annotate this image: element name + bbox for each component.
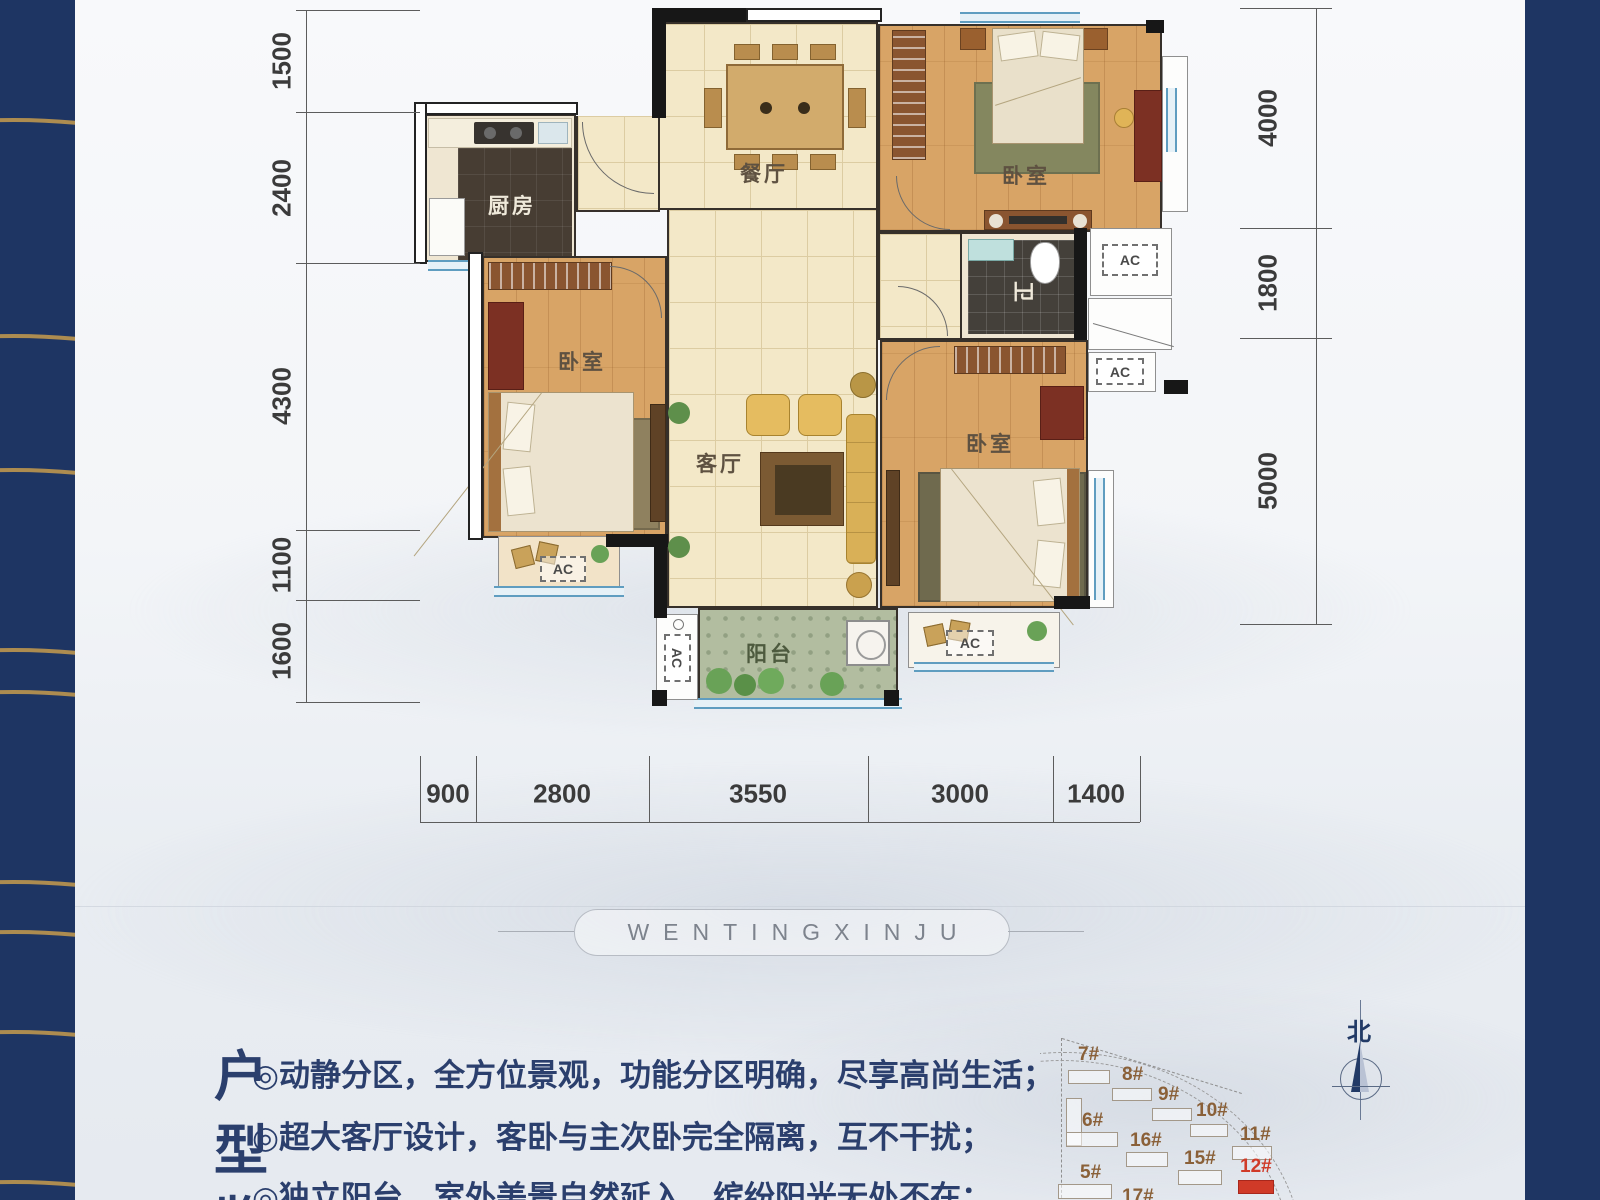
building-footprint: [1112, 1088, 1152, 1101]
dining-chair: [810, 154, 836, 170]
compass-needle-light: [1360, 1042, 1369, 1092]
armchair: [798, 394, 842, 436]
building-footprint: [1126, 1152, 1168, 1167]
armchair: [746, 394, 790, 436]
dim-label: 1100: [267, 537, 298, 593]
coffee-table: [760, 452, 844, 526]
fridge: [429, 198, 465, 256]
dim-label: 3000: [931, 779, 989, 810]
dining-chair: [848, 88, 866, 128]
utility-platform: [1088, 298, 1172, 350]
bed: [488, 392, 634, 532]
dining-label: 餐厅: [740, 158, 788, 188]
balcony-label: 阳台: [746, 638, 794, 668]
cabinet: [488, 302, 524, 390]
ac-unit: AC: [664, 634, 691, 682]
desk-chair: [1114, 108, 1134, 128]
dining-chair: [704, 88, 722, 128]
building-label: 15#: [1184, 1148, 1216, 1170]
nightstand: [960, 28, 986, 50]
building-label: 16#: [1130, 1130, 1162, 1152]
dim-label: 2400: [267, 159, 298, 217]
wall-chunk: [1074, 228, 1087, 340]
outer-wall: [414, 102, 427, 264]
dim-tick: [868, 756, 869, 822]
dim-tick: [420, 756, 421, 822]
kitchen-sink: [538, 122, 568, 144]
dim-label: 5000: [1253, 452, 1284, 510]
compass-needle: [1351, 1042, 1360, 1092]
dim-label: 4000: [1253, 89, 1284, 147]
dim-tick: [649, 756, 650, 822]
nightstand: [1082, 28, 1108, 50]
dim-label: 2800: [533, 779, 591, 810]
bedroom-left-label: 卧室: [558, 346, 606, 376]
building-label: 11#: [1240, 1124, 1271, 1146]
dim-tick: [1240, 624, 1332, 625]
dim-label: 1600: [267, 622, 298, 680]
side-table: [850, 372, 876, 398]
dim-tick: [1240, 338, 1332, 339]
bathroom-label: 卫: [1009, 281, 1039, 305]
dim-tick: [1053, 756, 1054, 822]
dim-tick: [1240, 228, 1332, 229]
plant: [668, 536, 690, 558]
kitchen-label: 厨房: [488, 190, 536, 220]
building-footprint: [1066, 1132, 1118, 1147]
plant: [706, 668, 732, 694]
desk: [1134, 90, 1162, 182]
gold-arc: [0, 1030, 75, 1200]
pouf: [846, 572, 872, 598]
building-footprint-highlight: [1238, 1180, 1274, 1194]
ac-unit: AC: [946, 630, 994, 656]
wall-chunk: [652, 8, 748, 22]
dim-tick: [296, 112, 420, 113]
building-label: 9#: [1158, 1084, 1179, 1106]
left-decor-band: [0, 0, 75, 1200]
bathroom-sink: [968, 239, 1014, 261]
bed: [940, 468, 1080, 602]
ac-unit: AC: [1102, 244, 1158, 276]
mist-divider-line: [75, 906, 1525, 907]
outer-wall: [468, 252, 483, 540]
building-label: 7#: [1078, 1044, 1099, 1066]
tv-console: [886, 470, 900, 586]
dim-label: 1800: [1253, 254, 1284, 312]
window: [428, 260, 472, 271]
window: [694, 698, 902, 709]
dining-chair: [772, 44, 798, 60]
wall-chunk: [652, 690, 667, 706]
banner-text: WENTINGXINJU: [613, 919, 970, 946]
dim-line-right: [1316, 8, 1317, 624]
window: [960, 12, 1080, 23]
wall-chunk: [652, 8, 666, 118]
tv-console: [650, 404, 666, 522]
dim-tick: [296, 10, 420, 11]
building-label: 6#: [1082, 1110, 1103, 1132]
poster-page: 厨房 卧室 卫 AC AC: [0, 0, 1600, 1200]
building-footprint: [1152, 1108, 1192, 1121]
building-label: 17#: [1122, 1186, 1154, 1200]
window: [1094, 478, 1105, 600]
compass-crossline: [1332, 1086, 1390, 1087]
gold-arc: [0, 1180, 75, 1200]
building-label: 5#: [1080, 1162, 1101, 1184]
window: [494, 586, 624, 597]
dim-line-left: [306, 10, 307, 702]
washing-machine: [846, 620, 890, 666]
wardrobe: [954, 346, 1066, 374]
ac-unit: AC: [1096, 358, 1144, 385]
feature-bullet: ◎动静分区，全方位景观，功能分区明确，尽享高尚生活；: [252, 1050, 1054, 1095]
bedroom-top-label: 卧室: [1002, 160, 1050, 190]
dining-chair: [734, 44, 760, 60]
dim-label: 1500: [267, 32, 298, 90]
banner-pill: WENTINGXINJU: [574, 909, 1010, 956]
feature-bullet: ◎独立阳台，室外美景自然延入，缤纷阳光无处不在；: [252, 1172, 992, 1200]
bed: [992, 28, 1084, 144]
wardrobe: [892, 30, 926, 160]
dim-label: 1400: [1067, 779, 1125, 810]
sitemap: 7# 8# 9# 10# 11# 6# 16# 15# 12# 5# 17#: [1040, 1000, 1340, 1200]
dim-tick: [1240, 8, 1332, 9]
outer-wall: [746, 8, 882, 22]
building-label-highlight: 12#: [1240, 1156, 1272, 1178]
building-label: 10#: [1196, 1100, 1228, 1122]
plant: [734, 674, 756, 696]
wall-chunk: [654, 534, 667, 618]
outer-wall: [416, 102, 578, 115]
plant: [668, 402, 690, 424]
dining-table: [726, 64, 844, 150]
stove: [474, 122, 534, 144]
wall-chunk: [884, 690, 899, 706]
dim-label: 900: [426, 779, 469, 810]
room-kitchen: [424, 114, 576, 262]
dim-tick: [296, 530, 420, 531]
toilet: [1030, 242, 1060, 284]
dim-label: 3550: [729, 779, 787, 810]
bedroom-right-label: 卧室: [966, 428, 1014, 458]
closet: [488, 262, 612, 290]
wall-chunk: [1164, 380, 1188, 394]
dim-line-bottom: [420, 822, 1140, 823]
feature-bullet: ◎超大客厅设计，客卧与主次卧完全隔离，互不干扰；: [252, 1112, 992, 1157]
dim-tick: [296, 702, 420, 703]
window: [1166, 88, 1177, 152]
window: [914, 662, 1054, 672]
right-decor-band: [1525, 0, 1600, 1200]
ac-unit: AC: [540, 556, 586, 582]
dim-tick: [296, 263, 420, 264]
sofa: [846, 414, 876, 564]
wall-chunk: [1146, 20, 1164, 33]
dim-tick: [1140, 756, 1141, 822]
plant: [820, 672, 844, 696]
dim-tick: [476, 756, 477, 822]
building-label: 8#: [1122, 1064, 1143, 1086]
compass: 北: [1320, 1000, 1410, 1130]
wall-chunk: [1054, 596, 1090, 609]
desk: [1040, 386, 1084, 440]
dim-label: 4300: [267, 367, 298, 425]
dim-tick: [296, 600, 420, 601]
building-footprint: [1178, 1170, 1222, 1185]
banner-line-left: [498, 931, 574, 932]
plant: [758, 668, 784, 694]
building-footprint: [1190, 1124, 1228, 1137]
living-label: 客厅: [696, 448, 744, 478]
building-footprint: [1058, 1184, 1112, 1199]
dresser: [984, 210, 1092, 230]
dining-chair: [810, 44, 836, 60]
room-balcony: [698, 608, 898, 700]
banner-line-right: [1008, 931, 1084, 932]
building-footprint: [1068, 1070, 1110, 1084]
